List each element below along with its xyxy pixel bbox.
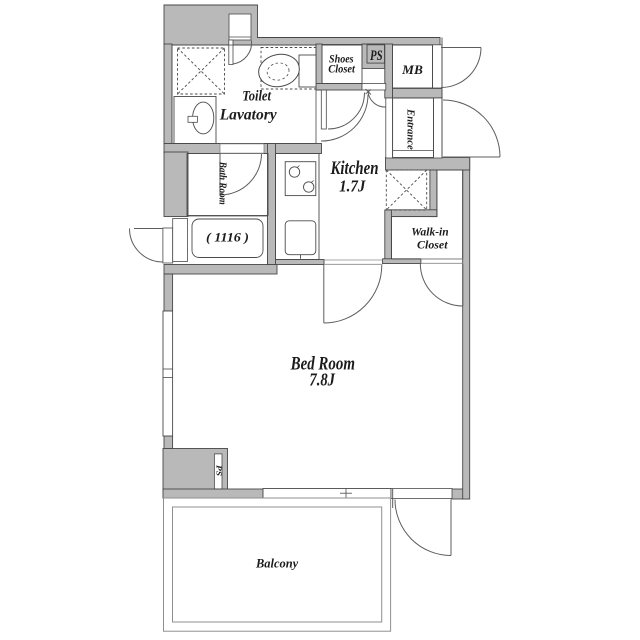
svg-text:MB: MB (401, 62, 423, 77)
svg-text:( 1116 ): ( 1116 ) (206, 231, 249, 245)
svg-text:7.8J: 7.8J (309, 370, 336, 390)
svg-text:Entrance: Entrance (404, 108, 415, 150)
svg-text:Walk-in: Walk-in (411, 225, 449, 239)
svg-text:Toilet: Toilet (242, 89, 271, 105)
svg-text:PS: PS (370, 48, 383, 64)
svg-text:Lavatory: Lavatory (219, 107, 278, 124)
svg-text:Balcony: Balcony (255, 556, 298, 571)
svg-text:Closet: Closet (417, 237, 448, 251)
svg-text:1.7J: 1.7J (339, 177, 366, 196)
svg-text:Bath Room: Bath Room (217, 161, 228, 205)
svg-text:PS: PS (215, 465, 223, 476)
svg-text:Closet: Closet (328, 61, 355, 75)
